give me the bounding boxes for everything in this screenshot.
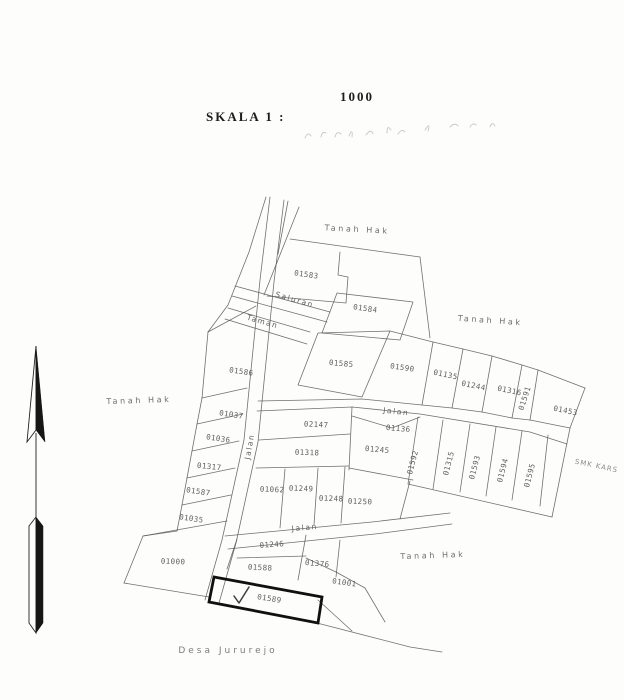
road-label-jalan-middle: Jalan <box>382 406 410 418</box>
parcel-label-01135: 01135 <box>433 368 459 382</box>
parcel-label-01248: 01248 <box>319 494 344 504</box>
parcel-label-01587: 01587 <box>186 485 212 497</box>
parcel-label-01584: 01584 <box>353 302 379 314</box>
parcel-label-01001: 01001 <box>332 576 358 588</box>
strip-label-taman: Taman <box>245 313 280 331</box>
parcel-label-01588: 01588 <box>248 562 273 572</box>
area-label-tanah-hak-top: Tanah Hak <box>323 223 389 235</box>
parcel-label-01245: 01245 <box>365 444 390 455</box>
check-mark <box>234 587 249 603</box>
village-label: Desa Jururejo <box>178 646 277 656</box>
parcel-label-01586: 01586 <box>229 365 255 377</box>
parcel-label-01318: 01318 <box>295 448 320 458</box>
area-label-tanah-hak-west: Tanah Hak <box>105 395 171 406</box>
parcel-label-01062: 01062 <box>260 485 285 495</box>
parcel-label-01593: 01593 <box>467 454 482 480</box>
parcel-label-01317: 01317 <box>197 461 222 473</box>
area-label-tanah-hak-top-right: Tanah Hak <box>456 314 522 328</box>
parcel-label-01592: 01592 <box>405 449 420 475</box>
parcel-label-01453: 01453 <box>553 404 579 418</box>
road-label-jalan-main: Jalan <box>243 433 257 461</box>
area-labels: Tanah Hak Tanah Hak Tanah Hak Tanah Hak … <box>105 223 618 656</box>
parcel-label-01315: 01315 <box>441 450 456 476</box>
north-arrow-icon <box>27 346 45 633</box>
area-label-smk-school: SMK KARS <box>574 458 619 475</box>
parcel-label-01585: 01585 <box>329 358 354 369</box>
parcel-label-01250: 01250 <box>348 497 373 507</box>
parcel-label-01249: 01249 <box>289 484 314 494</box>
area-label-tanah-hak-bottom-right: Tanah Hak <box>399 550 465 561</box>
parcel-label-01035: 01035 <box>179 512 205 524</box>
parcel-label-01036: 01036 <box>206 432 232 444</box>
parcel-label-01136: 01136 <box>386 423 411 434</box>
parcel-label-01244: 01244 <box>461 379 487 393</box>
parcel-label-02147: 02147 <box>304 419 329 429</box>
parcel-label-01590: 01590 <box>390 361 416 373</box>
parcel-label-01376: 01376 <box>305 558 330 569</box>
parcel-label-01589-highlighted: 01589 <box>257 592 283 605</box>
channel-label-saluran: Saluran <box>274 290 315 310</box>
scale-label: SKALA 1 : <box>206 109 285 124</box>
parcel-label-01583: 01583 <box>294 268 320 280</box>
scanned-cadastral-map: 1000 SKALA 1 : <box>0 0 624 700</box>
road-label-jalan-lower: Jalan <box>290 522 318 533</box>
parcel-label-01000: 01000 <box>161 557 186 567</box>
handwritten-scale-note <box>305 124 495 138</box>
scale-denominator: 1000 <box>340 89 374 104</box>
parcel-label-01594: 01594 <box>495 457 510 483</box>
parcel-label-01246: 01246 <box>259 539 284 550</box>
parcel-label-01595: 01595 <box>522 462 537 488</box>
parcel-label-01316: 01316 <box>497 384 523 398</box>
